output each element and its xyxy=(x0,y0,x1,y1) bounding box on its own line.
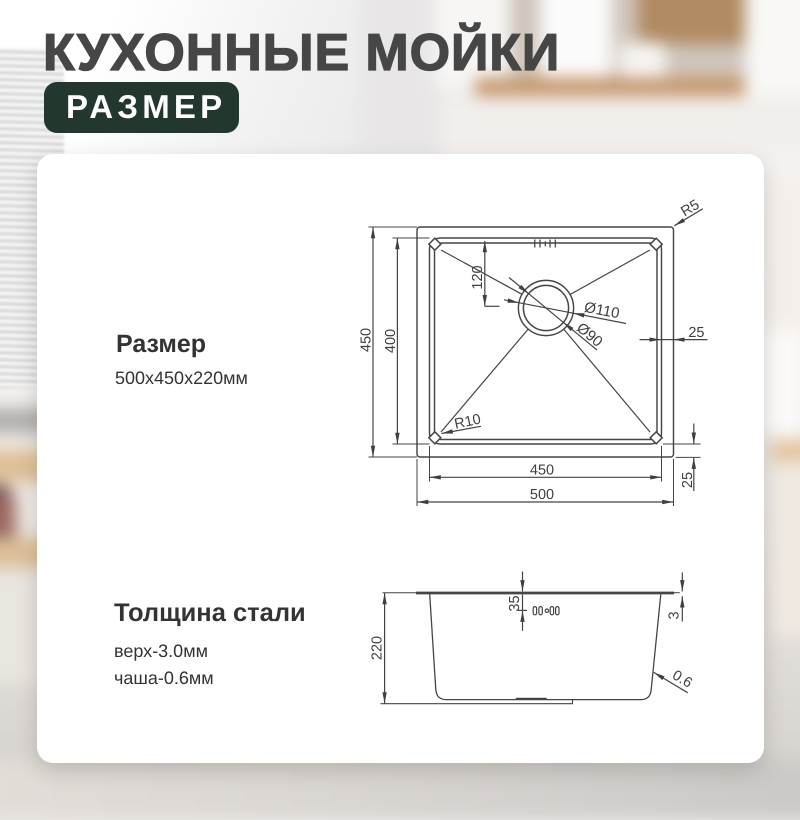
svg-text:R10: R10 xyxy=(453,411,482,432)
svg-text:3: 3 xyxy=(667,611,683,619)
svg-text:450: 450 xyxy=(530,463,554,479)
svg-text:35: 35 xyxy=(507,595,523,611)
svg-text:400: 400 xyxy=(383,329,399,353)
svg-text:Ø110: Ø110 xyxy=(583,299,621,322)
svg-text:120: 120 xyxy=(470,265,486,289)
svg-text:500: 500 xyxy=(530,487,554,503)
svg-text:0.6: 0.6 xyxy=(669,668,695,692)
svg-text:25: 25 xyxy=(680,472,696,488)
svg-text:220: 220 xyxy=(370,636,386,660)
svg-text:25: 25 xyxy=(688,325,704,341)
svg-text:R5: R5 xyxy=(678,197,702,220)
svg-text:450: 450 xyxy=(358,328,374,352)
